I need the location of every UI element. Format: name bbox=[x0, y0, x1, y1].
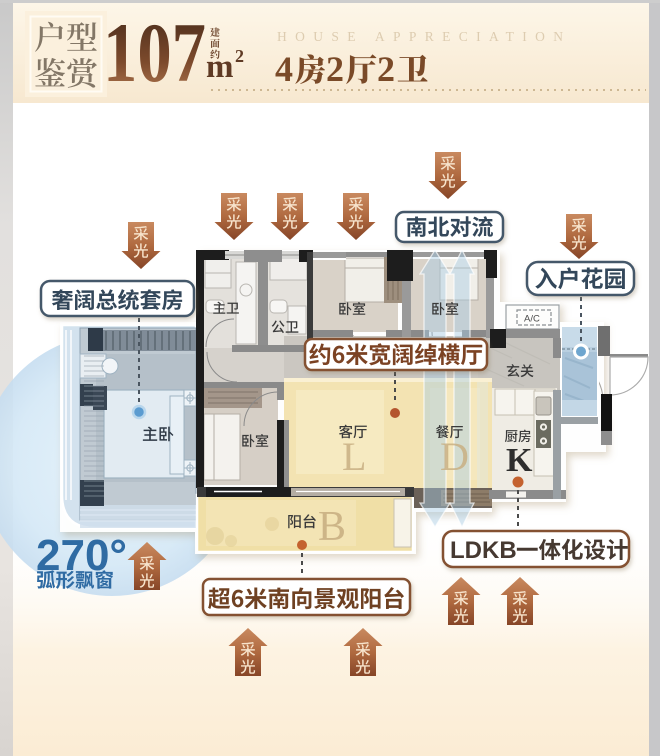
svg-text:2: 2 bbox=[377, 49, 395, 89]
svg-text:2: 2 bbox=[326, 49, 344, 89]
svg-text:A/C: A/C bbox=[524, 314, 540, 325]
svg-text:D: D bbox=[440, 434, 469, 479]
svg-text:107: 107 bbox=[103, 6, 206, 100]
svg-text:4: 4 bbox=[275, 49, 293, 89]
svg-text:LDKB: LDKB bbox=[450, 537, 517, 564]
svg-text:B: B bbox=[318, 504, 346, 550]
svg-text:2: 2 bbox=[235, 46, 244, 66]
svg-text:K: K bbox=[506, 442, 533, 479]
svg-text:L: L bbox=[342, 434, 366, 479]
svg-text:m: m bbox=[206, 49, 234, 85]
